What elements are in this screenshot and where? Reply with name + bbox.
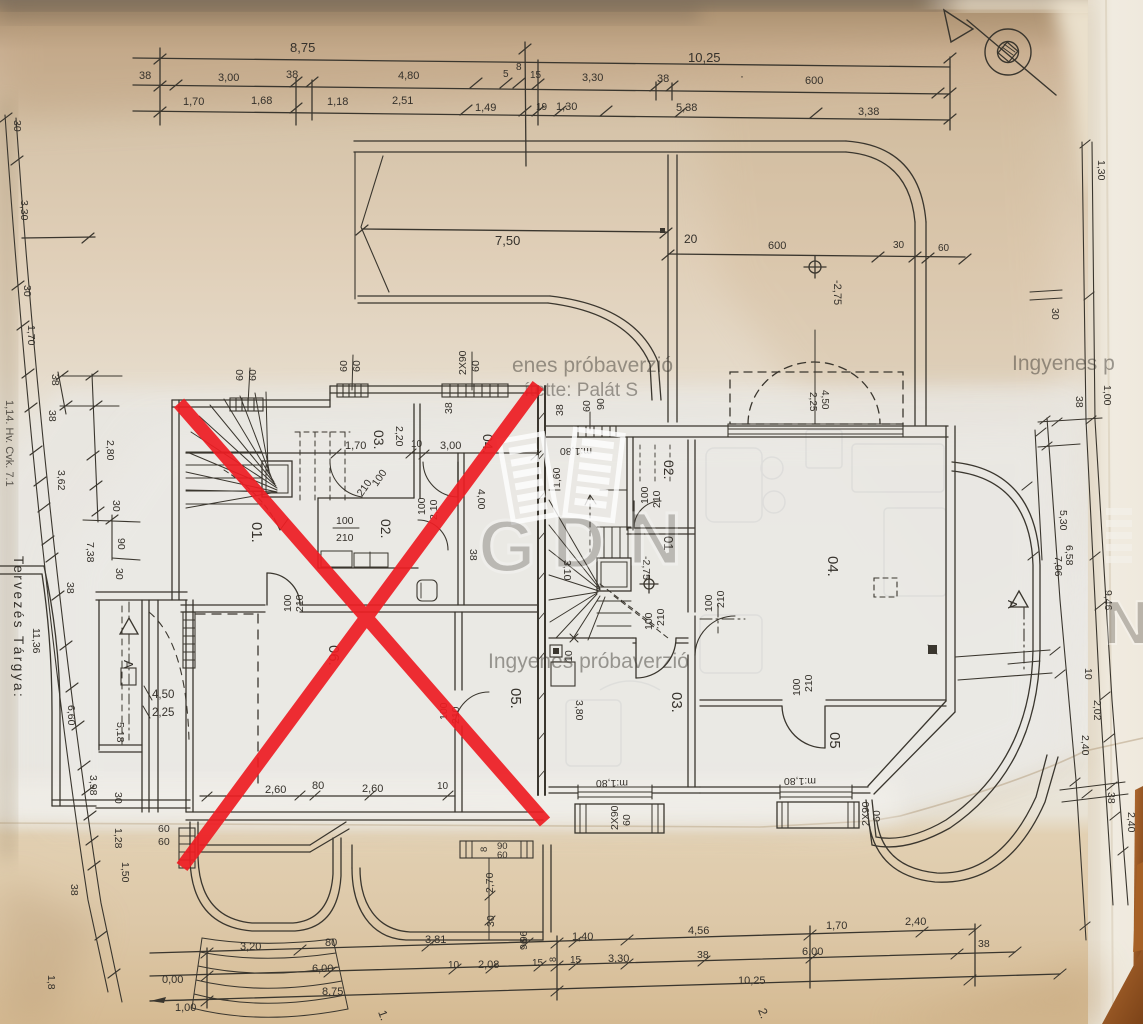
svg-text:3,30: 3,30 bbox=[608, 953, 629, 965]
svg-text:04.: 04. bbox=[824, 556, 841, 577]
svg-text:4,50: 4,50 bbox=[152, 689, 174, 701]
svg-text:10,25: 10,25 bbox=[688, 50, 721, 65]
svg-text:Ingyenes próbaverzió: Ingyenes próbaverzió bbox=[488, 650, 689, 673]
svg-text:60: 60 bbox=[338, 360, 350, 372]
svg-text:3,30: 3,30 bbox=[582, 72, 603, 84]
svg-text:1,49: 1,49 bbox=[475, 102, 496, 114]
svg-text:1,28: 1,28 bbox=[112, 828, 124, 849]
svg-text:4,50: 4,50 bbox=[819, 390, 830, 410]
svg-text:210: 210 bbox=[336, 532, 354, 544]
svg-text:60: 60 bbox=[158, 836, 170, 848]
svg-text:8: 8 bbox=[516, 62, 522, 73]
svg-text:D: D bbox=[552, 501, 605, 584]
svg-text:5,18: 5,18 bbox=[114, 722, 126, 743]
svg-text:100: 100 bbox=[703, 594, 715, 612]
svg-text:60: 60 bbox=[351, 360, 363, 372]
svg-text:60: 60 bbox=[581, 400, 593, 412]
svg-text:3,81: 3,81 bbox=[425, 934, 446, 946]
svg-text:A: A bbox=[1005, 600, 1020, 609]
svg-text:2,40: 2,40 bbox=[905, 916, 926, 928]
svg-text:38: 38 bbox=[1105, 792, 1117, 804]
svg-text:20: 20 bbox=[684, 232, 698, 246]
svg-text:4,56: 4,56 bbox=[688, 925, 709, 937]
svg-text:60: 60 bbox=[497, 850, 508, 861]
svg-text:11,36: 11,36 bbox=[30, 628, 42, 654]
svg-text:1,40: 1,40 bbox=[572, 931, 593, 943]
svg-text:30: 30 bbox=[893, 240, 905, 251]
svg-text:7,50: 7,50 bbox=[495, 233, 520, 248]
svg-text:600: 600 bbox=[805, 75, 823, 87]
svg-text:7,06: 7,06 bbox=[1052, 556, 1064, 577]
svg-text:5,30: 5,30 bbox=[1057, 510, 1069, 531]
svg-text:38: 38 bbox=[697, 949, 709, 961]
svg-text:4,80: 4,80 bbox=[398, 70, 419, 82]
svg-text:96: 96 bbox=[519, 930, 530, 942]
svg-text:1,30: 1,30 bbox=[556, 101, 577, 113]
svg-text:2,70: 2,70 bbox=[484, 872, 496, 893]
svg-text:2X90: 2X90 bbox=[609, 805, 621, 830]
svg-text:enes próbaverzió: enes próbaverzió bbox=[512, 354, 673, 377]
svg-text:60: 60 bbox=[938, 243, 950, 254]
svg-text:2,25: 2,25 bbox=[807, 392, 818, 412]
svg-text:2,80: 2,80 bbox=[104, 440, 116, 461]
svg-text:03.: 03. bbox=[371, 430, 387, 449]
svg-text:30: 30 bbox=[11, 120, 23, 132]
svg-text:6,60: 6,60 bbox=[65, 705, 77, 726]
svg-text:m:1,80: m:1,80 bbox=[784, 775, 816, 787]
svg-text:5,38: 5,38 bbox=[676, 102, 697, 114]
svg-text:10: 10 bbox=[1082, 668, 1094, 680]
svg-text:1,00: 1,00 bbox=[1101, 385, 1113, 406]
svg-text:38: 38 bbox=[443, 402, 455, 414]
svg-text:0,00: 0,00 bbox=[162, 974, 183, 986]
svg-text:1,14. Hv. Cvk. 7.1: 1,14. Hv. Cvk. 7.1 bbox=[3, 400, 15, 487]
svg-text:38: 38 bbox=[286, 69, 298, 81]
svg-text:30: 30 bbox=[1049, 308, 1061, 320]
svg-text:G: G bbox=[478, 505, 536, 588]
svg-text:m:1,80: m:1,80 bbox=[596, 777, 628, 789]
svg-text:Ingyenes p: Ingyenes p bbox=[1012, 352, 1115, 375]
svg-text:15: 15 bbox=[570, 955, 582, 966]
svg-text:10: 10 bbox=[437, 781, 449, 792]
svg-text:5: 5 bbox=[503, 69, 509, 80]
svg-text:2,40: 2,40 bbox=[1125, 812, 1137, 833]
svg-text:2,20: 2,20 bbox=[393, 426, 405, 447]
svg-text:1,70: 1,70 bbox=[183, 96, 204, 108]
svg-text:-2,75: -2,75 bbox=[831, 280, 843, 305]
svg-text:3,00: 3,00 bbox=[218, 72, 239, 84]
svg-text:3,38: 3,38 bbox=[858, 106, 879, 118]
svg-text:2X90: 2X90 bbox=[457, 350, 469, 375]
svg-text:30: 30 bbox=[485, 915, 497, 927]
svg-text:19: 19 bbox=[536, 102, 548, 113]
svg-text:3,62: 3,62 bbox=[55, 470, 67, 491]
svg-text:1,50: 1,50 bbox=[119, 862, 131, 883]
svg-text:60: 60 bbox=[621, 814, 633, 826]
svg-text:15: 15 bbox=[530, 70, 542, 81]
svg-text:38: 38 bbox=[49, 374, 61, 386]
svg-text:100: 100 bbox=[643, 612, 655, 630]
svg-text:100: 100 bbox=[416, 497, 428, 515]
svg-text:10: 10 bbox=[411, 439, 423, 450]
svg-text:2,40: 2,40 bbox=[1079, 735, 1091, 756]
svg-text:10,25: 10,25 bbox=[738, 975, 766, 987]
svg-text:3,80: 3,80 bbox=[573, 700, 585, 721]
svg-text:100: 100 bbox=[791, 678, 803, 696]
svg-text:8,75: 8,75 bbox=[290, 40, 315, 55]
svg-text:38: 38 bbox=[139, 70, 151, 82]
svg-text:80: 80 bbox=[325, 937, 337, 949]
svg-text:1,8: 1,8 bbox=[45, 975, 57, 990]
svg-text:100: 100 bbox=[282, 594, 294, 612]
svg-text:1,30: 1,30 bbox=[1095, 160, 1107, 181]
svg-text:3,20: 3,20 bbox=[240, 941, 261, 953]
svg-text:38: 38 bbox=[554, 404, 566, 416]
svg-text:3,98: 3,98 bbox=[87, 775, 99, 796]
svg-text:3,00: 3,00 bbox=[440, 440, 461, 452]
svg-text:8: 8 bbox=[548, 957, 558, 962]
svg-text:210: 210 bbox=[803, 674, 815, 692]
svg-text:1,00: 1,00 bbox=[175, 1002, 196, 1014]
svg-text:1,18: 1,18 bbox=[327, 96, 348, 108]
svg-text:2,25: 2,25 bbox=[152, 707, 174, 719]
svg-text:600: 600 bbox=[768, 240, 786, 252]
svg-text:1,70: 1,70 bbox=[345, 440, 366, 452]
svg-text:38: 38 bbox=[64, 582, 76, 594]
svg-text:1,70: 1,70 bbox=[826, 920, 847, 932]
svg-text:210: 210 bbox=[715, 590, 727, 608]
svg-text:30: 30 bbox=[110, 500, 122, 512]
svg-text:210: 210 bbox=[655, 608, 667, 626]
svg-text:6,00: 6,00 bbox=[312, 963, 333, 975]
svg-text:60: 60 bbox=[234, 369, 246, 381]
svg-text:2,08: 2,08 bbox=[478, 959, 499, 971]
svg-text:N: N bbox=[1104, 589, 1143, 658]
svg-text:05.: 05. bbox=[507, 688, 524, 709]
svg-text:10: 10 bbox=[448, 960, 460, 971]
svg-text:Tervezés Tárgya:: Tervezés Tárgya: bbox=[11, 556, 26, 699]
svg-text:1,68: 1,68 bbox=[251, 95, 272, 107]
svg-text:3,30: 3,30 bbox=[18, 200, 30, 221]
svg-text:2,60: 2,60 bbox=[265, 784, 286, 796]
svg-text:05: 05 bbox=[826, 732, 843, 749]
svg-text:N: N bbox=[628, 497, 681, 580]
svg-text:30: 30 bbox=[21, 285, 33, 297]
svg-text:01.: 01. bbox=[248, 522, 265, 543]
svg-text:90: 90 bbox=[115, 538, 127, 550]
svg-text:30: 30 bbox=[112, 792, 124, 804]
svg-text:38: 38 bbox=[46, 410, 58, 422]
svg-text:7,38: 7,38 bbox=[84, 542, 96, 563]
svg-text:210: 210 bbox=[294, 594, 306, 612]
svg-text:60: 60 bbox=[247, 369, 259, 381]
svg-text:80: 80 bbox=[312, 780, 324, 792]
svg-text:2,51: 2,51 bbox=[392, 95, 413, 107]
svg-text:38: 38 bbox=[978, 938, 990, 950]
svg-text:100: 100 bbox=[336, 515, 354, 527]
svg-text:60: 60 bbox=[470, 360, 482, 372]
svg-text:8: 8 bbox=[479, 847, 490, 852]
svg-text:·: · bbox=[740, 69, 744, 83]
svg-text:38: 38 bbox=[1073, 396, 1085, 408]
svg-text:38: 38 bbox=[657, 73, 669, 85]
svg-text:6,00: 6,00 bbox=[802, 946, 823, 958]
svg-text:2,60: 2,60 bbox=[362, 783, 383, 795]
svg-text:8,75: 8,75 bbox=[322, 986, 343, 998]
svg-text:15: 15 bbox=[532, 958, 544, 969]
svg-text:02.: 02. bbox=[378, 519, 394, 538]
svg-text:03.: 03. bbox=[668, 692, 685, 713]
svg-text:60: 60 bbox=[158, 823, 170, 835]
svg-text:1,70: 1,70 bbox=[25, 325, 37, 346]
svg-text:2,02: 2,02 bbox=[1091, 700, 1103, 721]
svg-text:30: 30 bbox=[113, 568, 125, 580]
svg-text:02.: 02. bbox=[661, 460, 677, 479]
svg-text:38: 38 bbox=[68, 884, 80, 896]
